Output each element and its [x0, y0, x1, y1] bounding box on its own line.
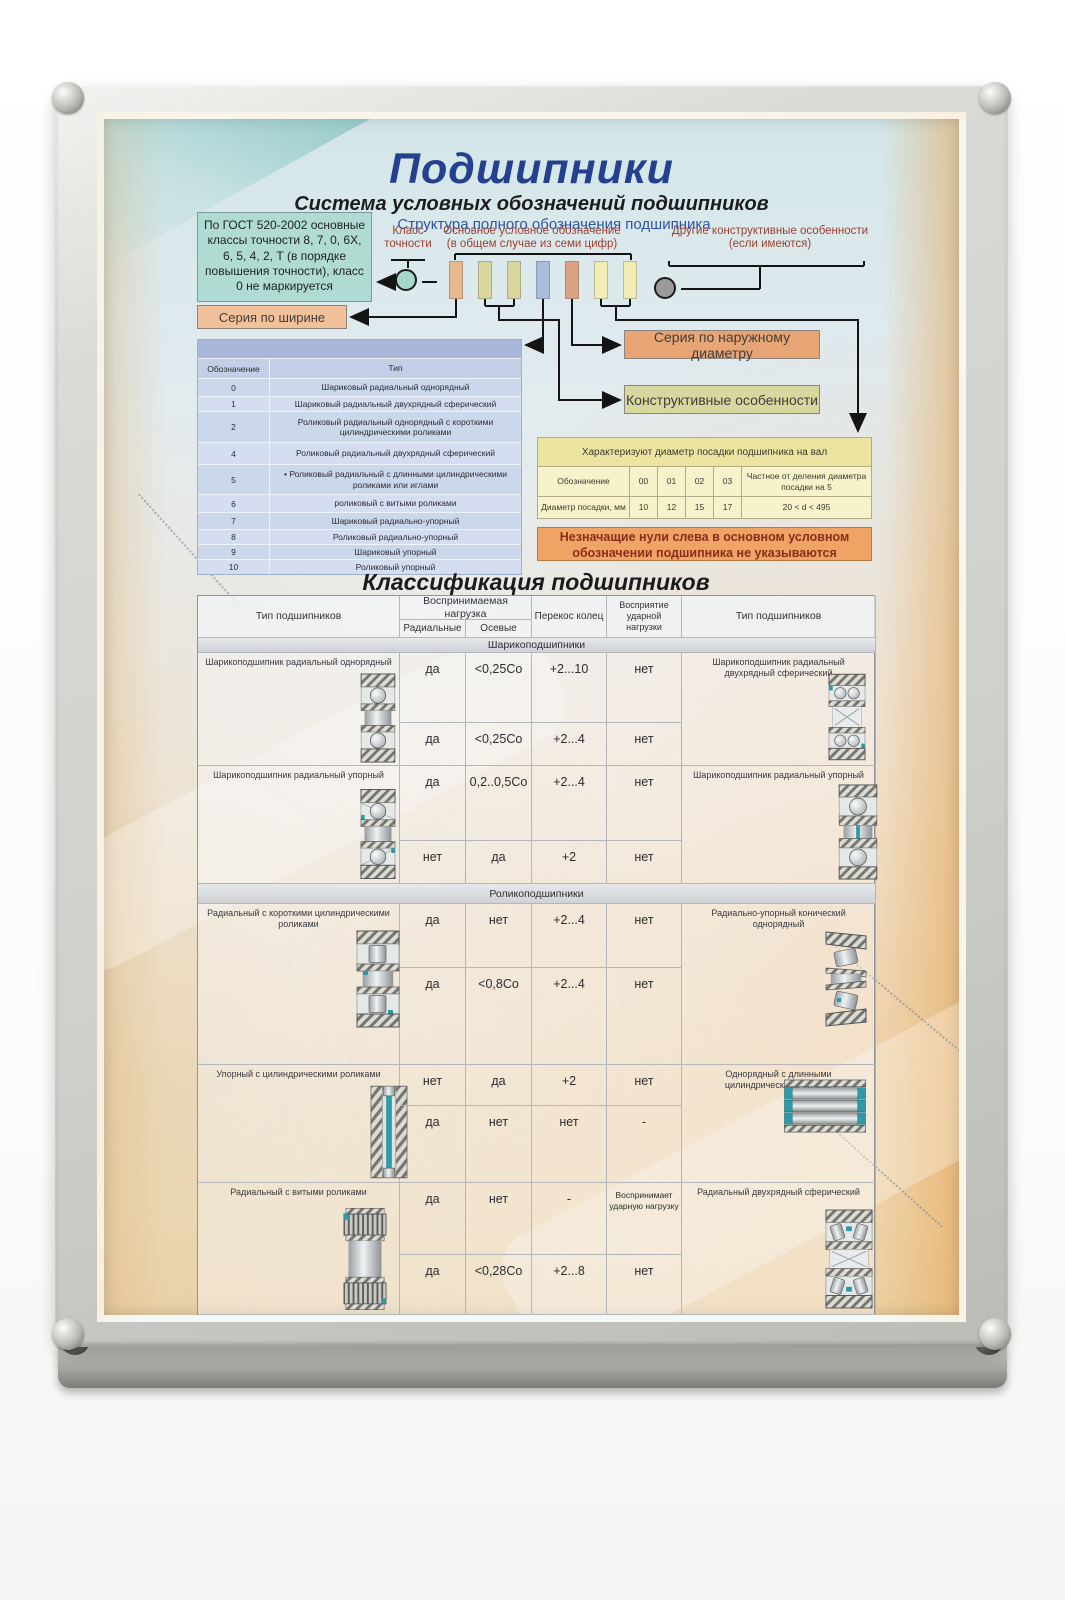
outer-diameter-series-box: Серия по наружному диаметру [624, 330, 820, 359]
value-cell: нет [532, 1106, 607, 1183]
table-row: 4Роликовый радиальный двухрядный сфериче… [198, 442, 521, 464]
value-cell: +2 [532, 841, 607, 884]
value-cell: нет [607, 1255, 682, 1315]
value-cell: - [532, 1183, 607, 1255]
value-cell: да [400, 1106, 466, 1183]
value-cell: нет [466, 1106, 532, 1183]
value-cell: - [607, 1106, 682, 1183]
table-row: 8Роликовый радиально-упорный [198, 529, 521, 544]
value-cell: <0,8Со [466, 968, 532, 1065]
value-cell: +2...10 [532, 653, 607, 723]
poster-sheet: Подшипники Система условных обозначений … [97, 112, 966, 1322]
value-cell: +2 [532, 1065, 607, 1106]
value-cell: да [466, 1065, 532, 1106]
frame-corner-cap [979, 82, 1011, 114]
bearing-ball-radial-single-icon [360, 673, 396, 763]
poster-title: Подшипники [104, 145, 959, 194]
bearing-ball-thrust-icon [838, 784, 878, 880]
table-row: 7Шариковый радиально-упорный [198, 512, 521, 529]
table-row: 2Роликовый радиальный однорядный с корот… [198, 411, 521, 442]
value-cell: <0,25Со [466, 723, 532, 766]
header-axial: Осевые [466, 620, 532, 638]
bearing-tapered-roller-icon [824, 930, 868, 1028]
value-cell: да [400, 1255, 466, 1315]
value-cell: да [400, 723, 466, 766]
type-table-header: Обозначение Тип [198, 358, 521, 378]
value-cell: нет [607, 904, 682, 968]
value-cell: +2...8 [532, 1255, 607, 1315]
bearing-cylindrical-roller-icon [356, 930, 400, 1028]
bearing-type-cell: Радиальный с короткими цилиндрическими р… [198, 904, 400, 1065]
value-cell: да [400, 904, 466, 968]
header-type-right: Тип подшипников [682, 596, 876, 638]
value-cell: нет [607, 968, 682, 1065]
table-row: Обозначение 00 01 02 03 Частное от делен… [538, 466, 871, 496]
table-row: 6роликовый с витыми роликами [198, 494, 521, 512]
bearing-type-cell: Радиально-упорный конический однорядный [682, 904, 876, 1065]
bearing-type-cell: Радиальный с витыми роликами [198, 1183, 400, 1315]
accuracy-class-label: Класс точности [376, 225, 440, 251]
digit-cell-6 [478, 261, 492, 299]
value-cell: нет [607, 841, 682, 884]
col-type: Тип [270, 359, 521, 378]
table-row: Диаметр посадки, мм 10 12 15 17 20 < d <… [538, 496, 871, 518]
value-cell: <0,25Со [466, 653, 532, 723]
digit-cell-2 [594, 261, 608, 299]
bearing-type-cell: Шарикоподшипник радиальный упорный [198, 766, 400, 884]
bearing-type-cell: Радиальный двухрядный сферический [682, 1183, 876, 1315]
table-row: 9Шариковый упорный [198, 544, 521, 559]
diameter-table-title: Характеризуют диаметр посадки подшипника… [538, 438, 871, 466]
value-cell: 0,2..0,5Со [466, 766, 532, 841]
header-shock: Восприятие ударной нагрузки [607, 596, 682, 638]
col-designation: Обозначение [198, 359, 270, 378]
main-designation-label: Основное условное обозначение (в общем с… [442, 225, 622, 251]
header-radial: Радиальные [400, 620, 466, 638]
frame-corner-cap [52, 1318, 84, 1350]
bearing-type-cell: Упорный с цилиндрическими роликами [198, 1065, 400, 1183]
gost-accuracy-note: По ГОСТ 520-2002 основные классы точност… [197, 212, 372, 302]
width-series-box: Серия по ширине [197, 305, 347, 329]
shaft-diameter-table: Характеризуют диаметр посадки подшипника… [537, 437, 872, 519]
value-cell: +2...4 [532, 968, 607, 1065]
bearing-type-cell: Шарикоподшипник радиальный упорный [682, 766, 876, 884]
table-row: 1Шариковый радиальный двухрядный сфериче… [198, 396, 521, 411]
bearing-ball-double-spherical-icon [828, 673, 866, 761]
value-cell: +2...4 [532, 723, 607, 766]
value-cell: да [466, 841, 532, 884]
frame-corner-cap [979, 1318, 1011, 1350]
bearing-type-cell: Шарикоподшипник радиальный однорядный [198, 653, 400, 766]
value-cell: нет [607, 723, 682, 766]
accuracy-class-node [395, 269, 417, 291]
value-cell: нет [607, 766, 682, 841]
frame-bottom-profile [58, 1342, 1007, 1388]
digit-cell-3 [565, 261, 579, 299]
value-cell: нет [607, 1065, 682, 1106]
value-cell: +2...4 [532, 766, 607, 841]
value-cell: да [400, 968, 466, 1065]
value-cell: да [400, 653, 466, 723]
other-features-label: Другие конструктивные особенности (если … [660, 225, 880, 251]
bearing-ball-angular-contact-icon [360, 788, 396, 880]
value-cell: <0,28Со [466, 1255, 532, 1315]
header-load: Воспринимаемая нагрузка [400, 596, 532, 620]
bearing-needle-roller-icon [782, 1079, 868, 1135]
digit-cell-4 [536, 261, 550, 299]
type-table-top-bar [198, 340, 521, 358]
value-cell: да [400, 766, 466, 841]
other-features-node [654, 277, 676, 299]
value-cell: Воспринимает ударную нагрузку [607, 1183, 682, 1255]
value-cell: нет [607, 653, 682, 723]
value-cell: нет [466, 904, 532, 968]
header-type-left: Тип подшипников [198, 596, 400, 638]
value-cell: нет [400, 1065, 466, 1106]
photo-stage: Подшипники Система условных обозначений … [0, 0, 1065, 1600]
value-cell: нет [400, 841, 466, 884]
bearing-type-table: Обозначение Тип 0Шариковый радиальный од… [197, 339, 522, 575]
digit-cell-5 [507, 261, 521, 299]
frame-corner-cap [52, 82, 84, 114]
section-ball-bearings: Шарикоподшипники [198, 638, 876, 653]
value-cell: +2...4 [532, 904, 607, 968]
poster-frame: Подшипники Система условных обозначений … [55, 85, 1008, 1347]
value-cell: нет [466, 1183, 532, 1255]
header-misalignment: Перекос колец [532, 596, 607, 638]
classification-table: Тип подшипников Воспринимаемая нагрузка … [197, 595, 875, 1316]
bearing-spiral-roller-icon [343, 1207, 387, 1311]
bearing-spherical-roller-double-icon [825, 1209, 873, 1309]
table-row: 5• Роликовый радиальный с длинными цилин… [198, 464, 521, 494]
digit-cell-1 [623, 261, 637, 299]
leading-zeros-note: Незначащие нули слева в основном условно… [537, 527, 872, 561]
design-features-box: Конструктивные особенности [624, 385, 820, 414]
classification-title: Классификация подшипников [236, 569, 836, 596]
table-row: 0Шариковый радиальный однорядный [198, 378, 521, 396]
value-cell: да [400, 1183, 466, 1255]
bearing-type-cell: Однорядный с длинными цилиндрическими иг… [682, 1065, 876, 1183]
section-roller-bearings: Роликоподшипники [198, 884, 876, 904]
digit-cell-7 [449, 261, 463, 299]
bearing-type-cell: Шарикоподшипник радиальный двухрядный сф… [682, 653, 876, 766]
